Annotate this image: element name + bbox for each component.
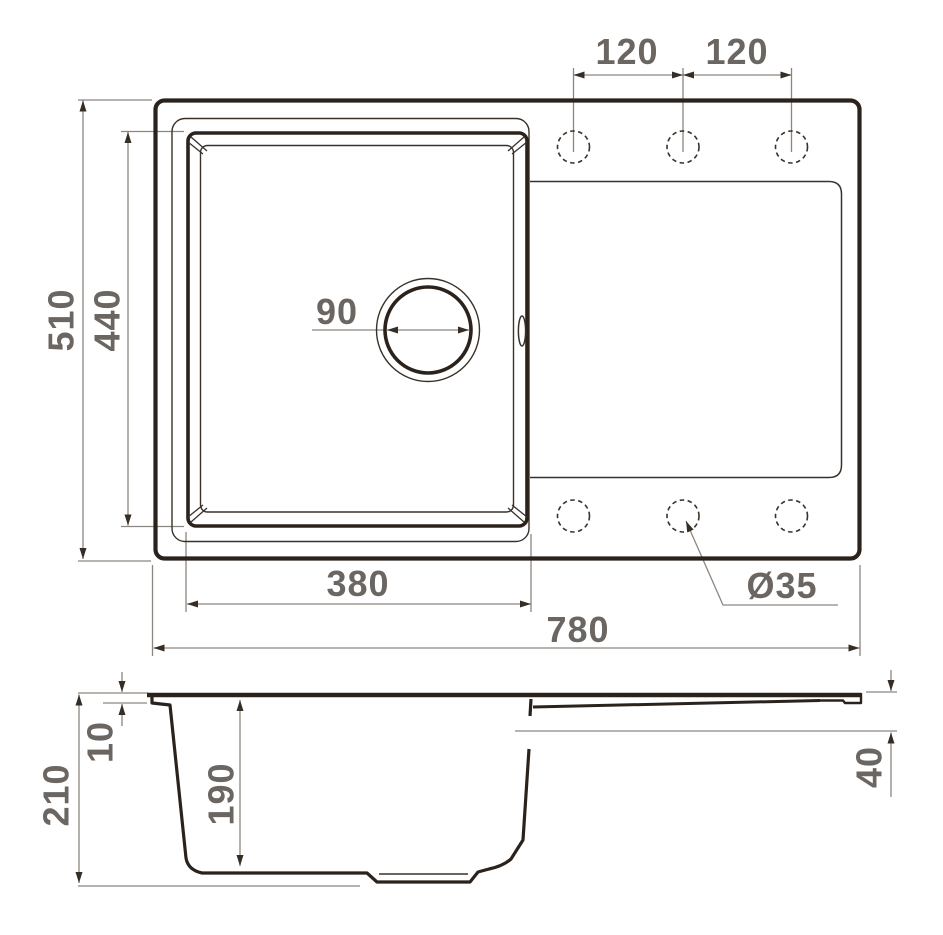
- dim-label-780: 780: [546, 609, 609, 650]
- dim-label-380: 380: [326, 563, 389, 604]
- dim-label-120-right: 120: [705, 31, 768, 72]
- section-drainboard-surface: [533, 701, 820, 708]
- dim-label-40: 40: [849, 746, 890, 788]
- dim-label-120-left: 120: [595, 31, 658, 72]
- tap-hole-bottom-mid: [667, 500, 699, 532]
- tap-hole-bottom-left: [558, 500, 590, 532]
- chamfer-top-left: [188, 137, 207, 154]
- dim-label-440: 440: [87, 288, 128, 351]
- chamfer-bottom-left: [188, 505, 207, 522]
- dim-label-190: 190: [201, 762, 242, 825]
- dimension-lines-top-view: [83, 75, 860, 648]
- overflow-hole: [518, 316, 525, 346]
- dim-label-510: 510: [41, 288, 82, 351]
- dim-label-tap-diameter: Ø35: [746, 565, 817, 606]
- drainboard-outline: [530, 182, 842, 478]
- tap-hole-bottom-right: [776, 500, 808, 532]
- chamfer-bottom-right: [508, 505, 527, 522]
- dim-label-210: 210: [36, 763, 77, 826]
- section-view: 210 10 190 40: [36, 670, 898, 886]
- tap-holes: [558, 131, 808, 532]
- section-wall-above-overflow: [530, 699, 531, 716]
- top-view: 510 440 120 120 90 380 780 Ø35: [41, 31, 861, 656]
- dim-label-10: 10: [80, 721, 121, 763]
- dim-label-90: 90: [316, 291, 358, 332]
- technical-drawing: 510 440 120 120 90 380 780 Ø35: [0, 0, 943, 935]
- sink-outline: [156, 101, 860, 559]
- chamfer-top-right: [508, 137, 527, 154]
